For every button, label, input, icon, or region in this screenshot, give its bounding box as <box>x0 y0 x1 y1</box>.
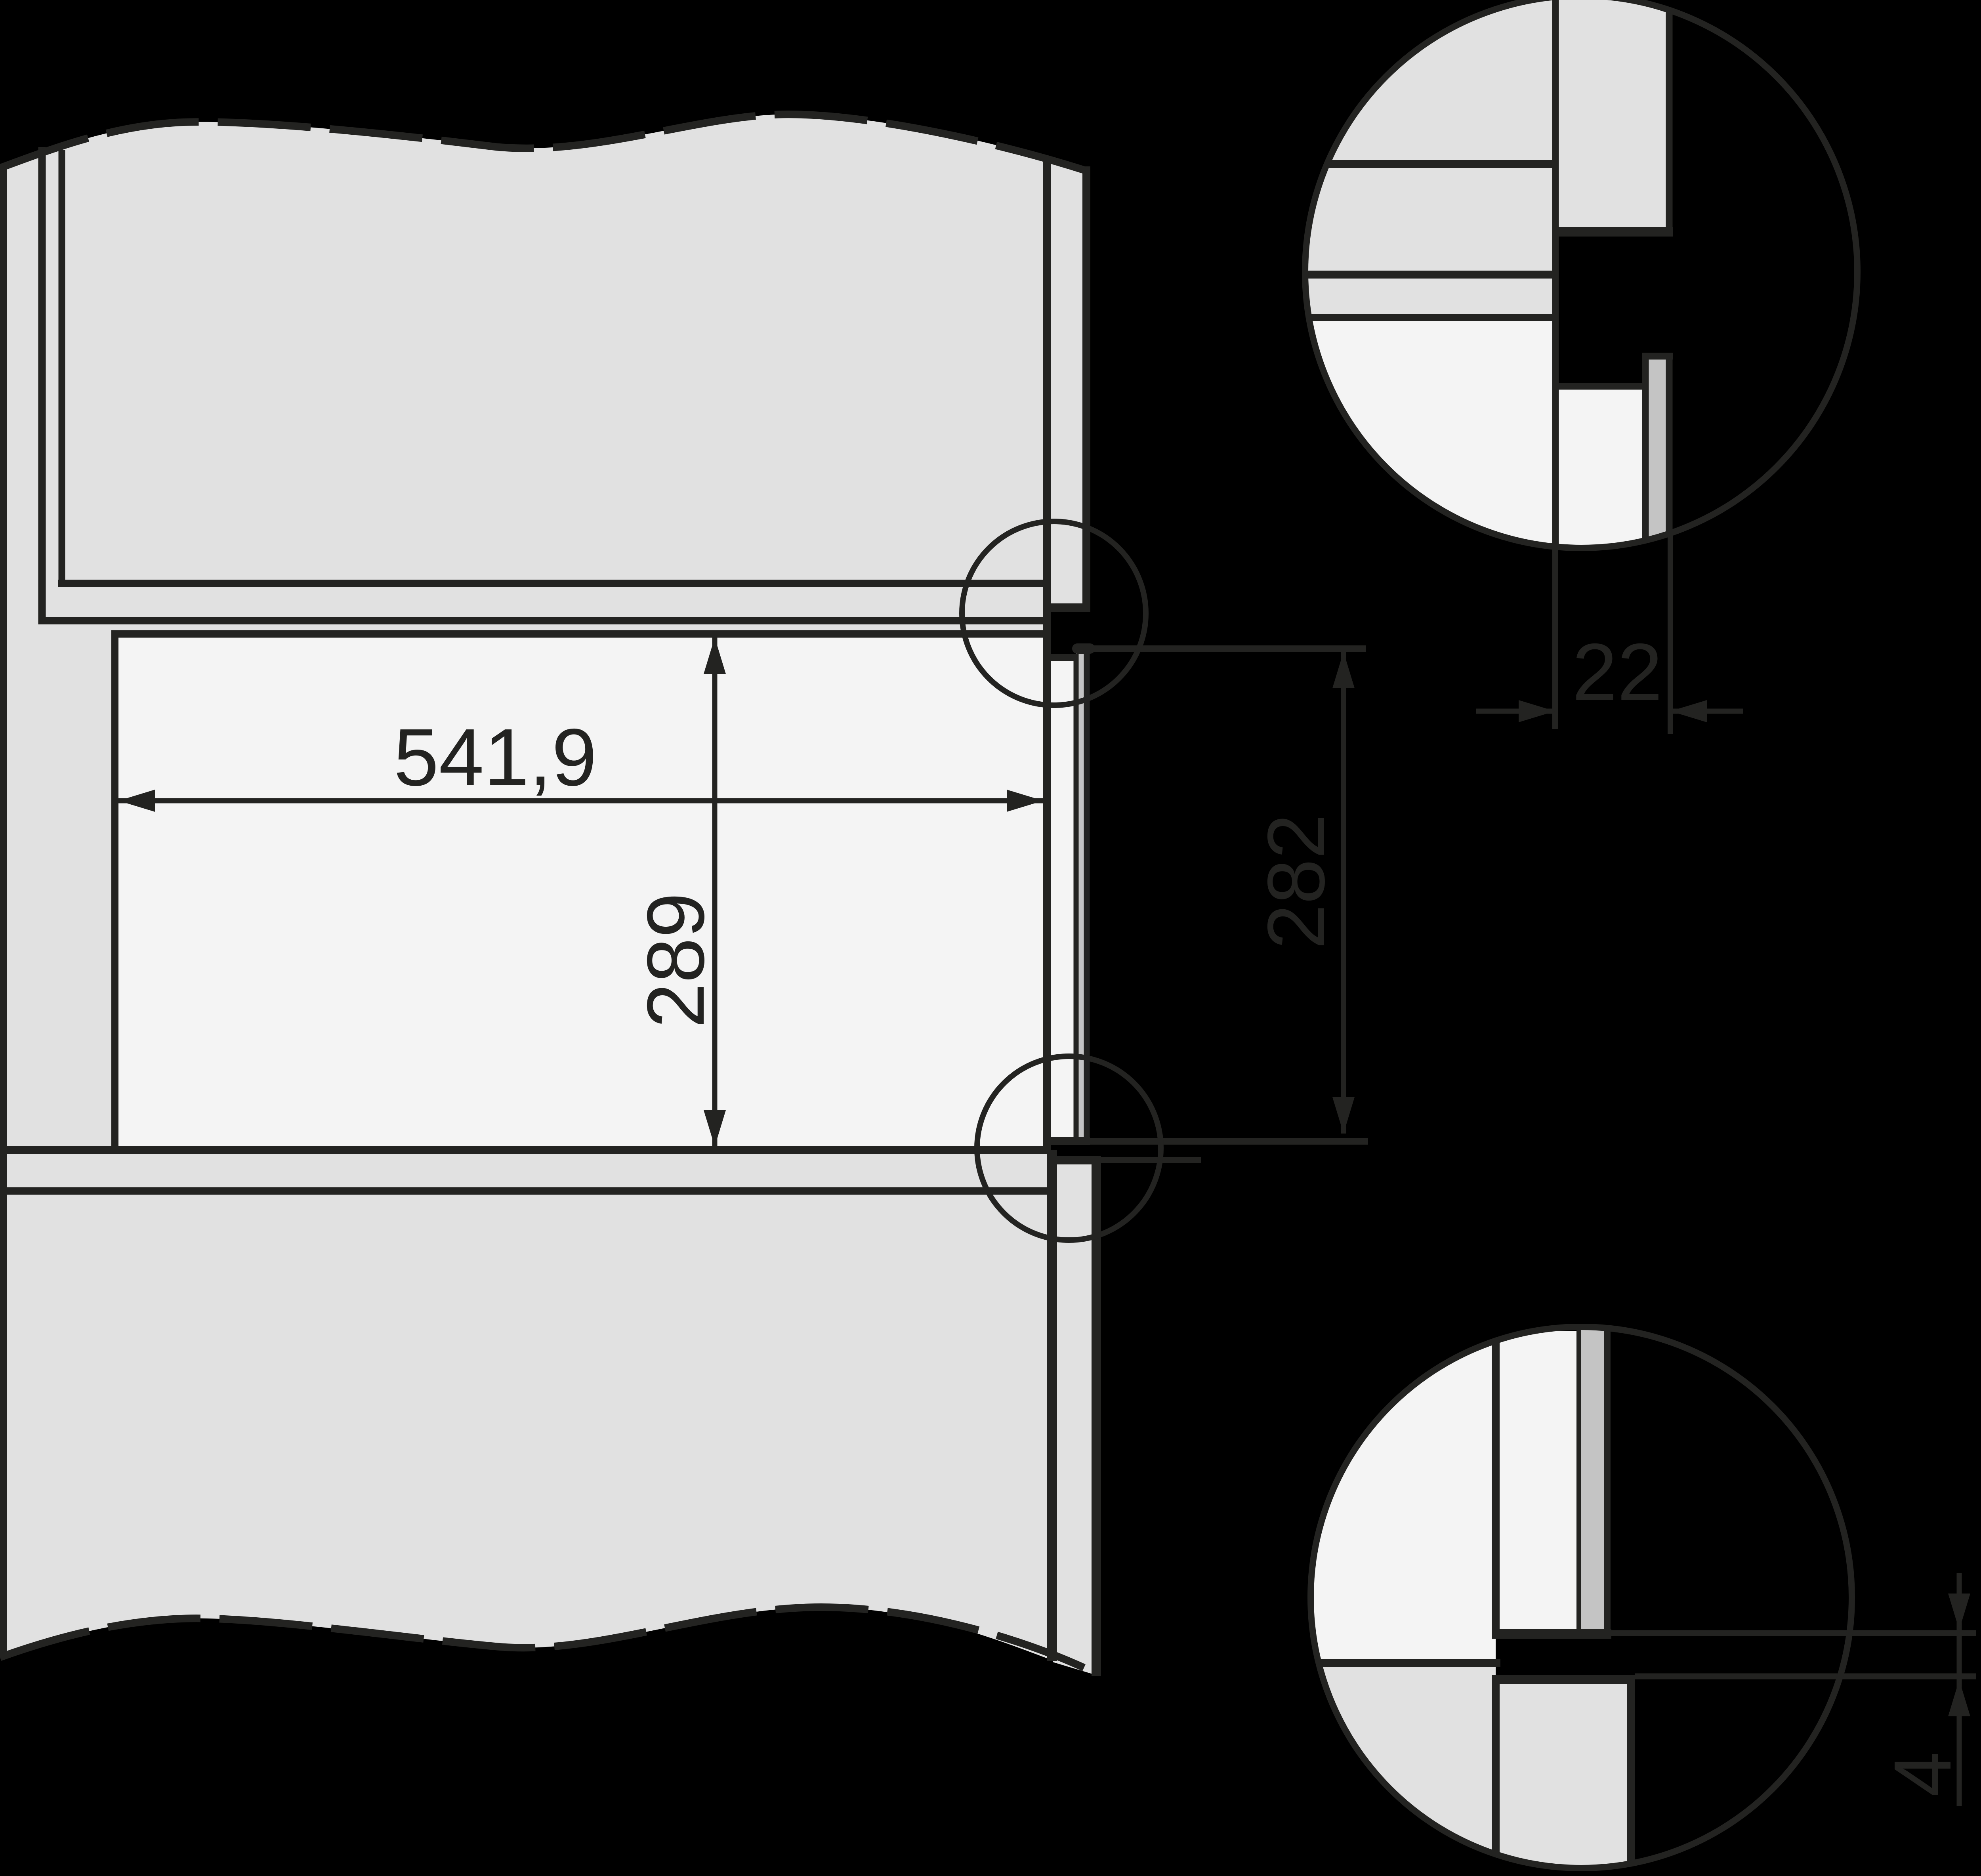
svg-text:282: 282 <box>1251 814 1342 949</box>
svg-text:4: 4 <box>1877 1752 1968 1797</box>
svg-text:541,9: 541,9 <box>393 712 597 803</box>
svg-text:289: 289 <box>630 893 721 1028</box>
svg-text:22: 22 <box>1572 627 1662 718</box>
